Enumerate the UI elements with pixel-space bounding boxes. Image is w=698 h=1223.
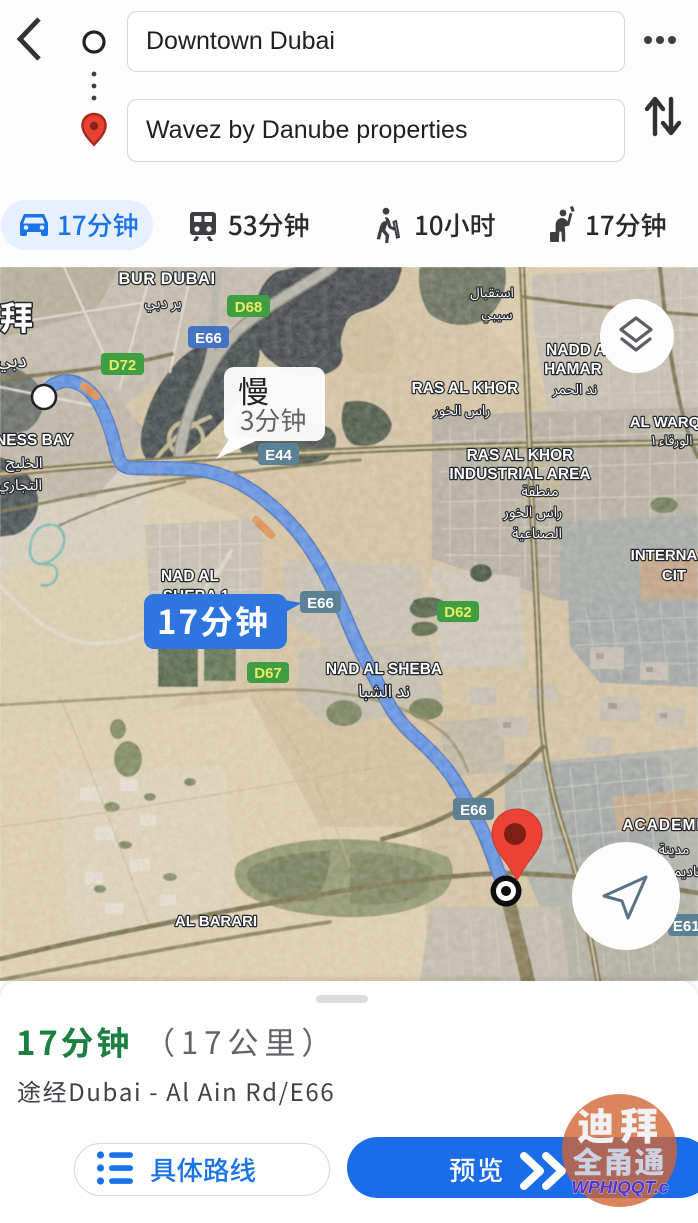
- svg-text:D62: D62: [444, 604, 472, 621]
- svg-text:RAS AL KHOR: RAS AL KHOR: [412, 380, 519, 397]
- svg-text:NAD AL: NAD AL: [161, 568, 219, 585]
- svg-text:D72: D72: [109, 357, 137, 374]
- svg-text:E66: E66: [460, 802, 487, 819]
- svg-text:INTERNA: INTERNA: [631, 547, 698, 564]
- svg-text:BUR DUBAI: BUR DUBAI: [118, 270, 215, 288]
- svg-text:ACADEMI: ACADEMI: [622, 817, 698, 834]
- svg-text:E66: E66: [307, 595, 334, 612]
- svg-text:AL WARQ: AL WARQ: [630, 414, 698, 431]
- svg-text:AL BARARI: AL BARARI: [175, 913, 257, 930]
- svg-text:NAD AL SHEBA: NAD AL SHEBA: [326, 661, 442, 678]
- svg-text:E44: E44: [265, 447, 292, 464]
- svg-text:RAS AL KHOR: RAS AL KHOR: [467, 447, 574, 464]
- svg-text:HAMAR: HAMAR: [544, 361, 602, 378]
- svg-text:NADD A: NADD A: [546, 342, 606, 359]
- svg-text:E66: E66: [195, 330, 222, 347]
- svg-text:NESS BAY: NESS BAY: [0, 432, 74, 449]
- svg-text:D68: D68: [235, 299, 263, 316]
- svg-text:CIT: CIT: [662, 567, 686, 584]
- svg-text:INDUSTRIAL AREA: INDUSTRIAL AREA: [449, 466, 590, 483]
- svg-text:E611: E611: [673, 918, 698, 935]
- svg-text:D67: D67: [254, 665, 282, 682]
- svg-text:WPHIQQT.c: WPHIQQT.c: [572, 1177, 669, 1197]
